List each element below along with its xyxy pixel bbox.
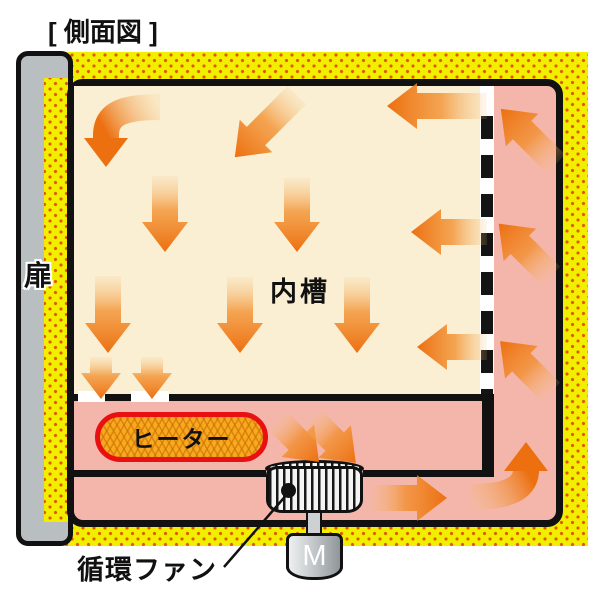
heater-label: ヒーター <box>132 420 232 454</box>
inner-chamber <box>74 86 480 394</box>
duct-divider-left <box>74 470 266 477</box>
duct-inner-wall <box>482 396 494 477</box>
inner-chamber-label: 内槽 <box>270 270 330 309</box>
diagram-title: [ 側面図 ] <box>48 12 158 49</box>
perforated-wall <box>480 86 494 396</box>
door-insulation-strip <box>44 78 68 522</box>
duct-divider-right <box>363 470 494 477</box>
door-label: 扉 <box>24 254 52 294</box>
chamber-bottom-vent-right <box>131 391 169 402</box>
fan-callout-dot <box>281 483 296 498</box>
perforated-wall-dashes <box>481 116 493 396</box>
motor-label: M <box>302 542 326 571</box>
circulation-fan-label: 循環ファン <box>77 548 217 587</box>
motor: M <box>286 533 343 580</box>
heater: ヒーター <box>95 412 268 462</box>
side-view-diagram: ヒーター M <box>0 0 600 600</box>
chamber-bottom-vent-left <box>78 391 105 402</box>
